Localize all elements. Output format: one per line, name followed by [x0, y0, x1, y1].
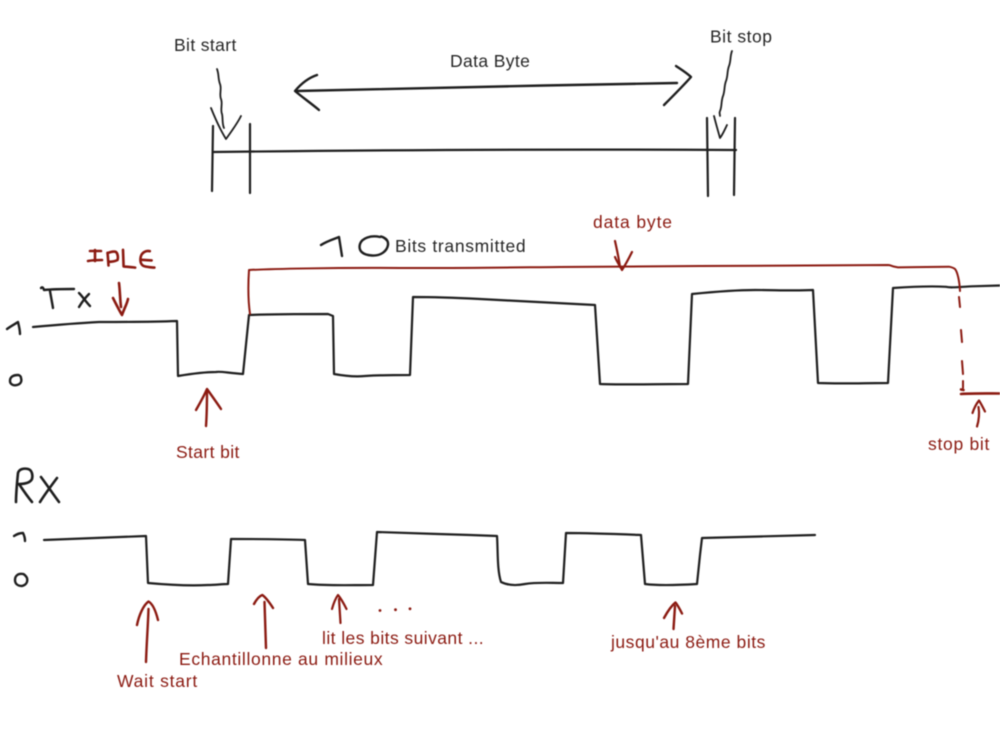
svg-text:jusqu'au 8ème bits: jusqu'au 8ème bits	[610, 632, 766, 652]
svg-text:Wait start: Wait start	[117, 671, 198, 691]
svg-text:Bit stop: Bit stop	[710, 27, 772, 47]
svg-text:data byte: data byte	[593, 212, 673, 232]
svg-text:Bits transmitted: Bits transmitted	[395, 236, 526, 256]
svg-text:stop bit: stop bit	[928, 434, 990, 454]
svg-text:lit les bits suivant ...: lit les bits suivant ...	[322, 628, 484, 648]
svg-text:Data Byte: Data Byte	[450, 51, 530, 71]
svg-text:Bit start: Bit start	[174, 35, 237, 55]
svg-text:Start bit: Start bit	[176, 442, 240, 462]
svg-text:Echantillonne au milieux: Echantillonne au milieux	[179, 649, 383, 669]
